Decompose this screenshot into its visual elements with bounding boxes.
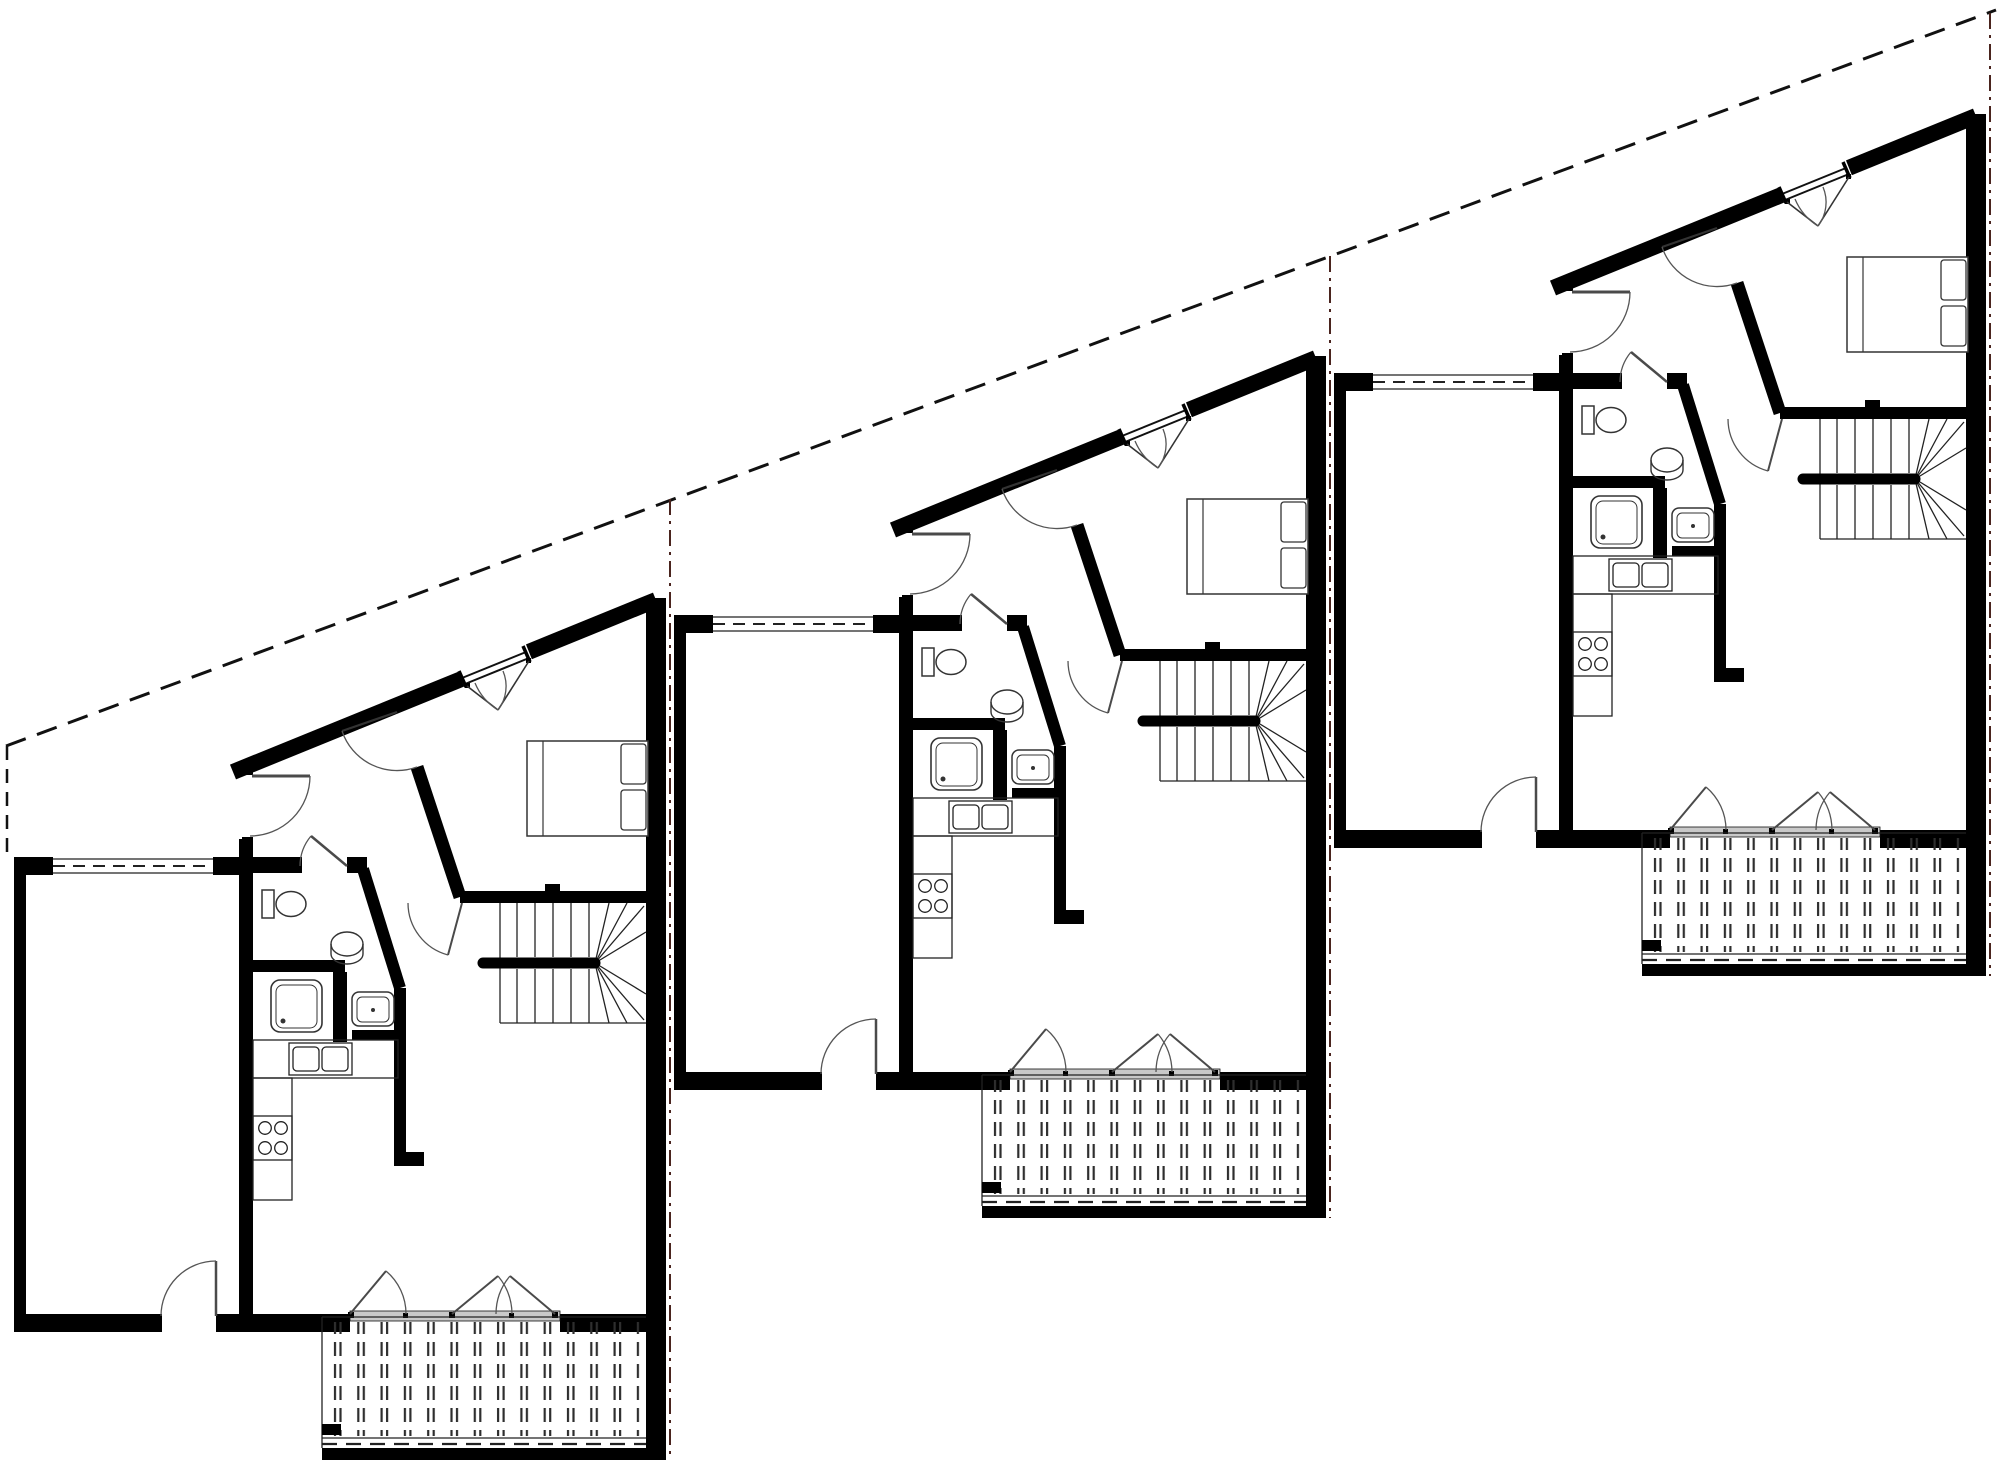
- floor-plan-page: [0, 0, 2000, 1460]
- units-layer: [14, 114, 1986, 1460]
- floor-plan-canvas: [0, 0, 2000, 1460]
- unit-3: [1334, 114, 1986, 976]
- unit-2: [674, 356, 1326, 1218]
- unit-1: [14, 598, 666, 1460]
- site-boundary-dashed-line: [6, 10, 1996, 746]
- party-line-group: [670, 13, 1990, 1460]
